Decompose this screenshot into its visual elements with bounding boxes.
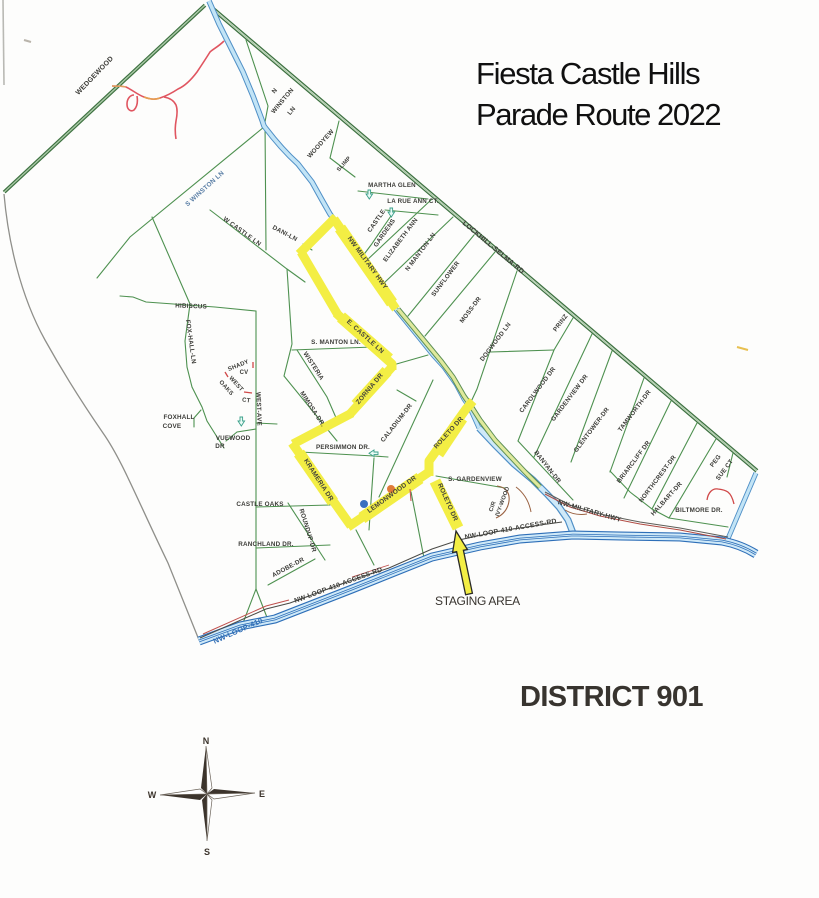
svg-text:N: N — [203, 736, 210, 746]
svg-text:S: S — [204, 847, 210, 857]
svg-text:COVE: COVE — [163, 423, 182, 430]
svg-text:FOXHALL: FOXHALL — [163, 414, 194, 421]
svg-text:CV: CV — [240, 370, 249, 376]
svg-text:DISTRICT 901: DISTRICT 901 — [520, 681, 703, 713]
svg-text:VUEWOOD: VUEWOOD — [216, 435, 251, 442]
svg-text:CT: CT — [242, 397, 251, 404]
svg-text:STAGING AREA: STAGING AREA — [435, 594, 520, 608]
svg-text:PERSIMMON DR.: PERSIMMON DR. — [316, 444, 370, 451]
svg-text:HIBISCUS: HIBISCUS — [175, 302, 207, 310]
svg-text:RANCHLAND DR.: RANCHLAND DR. — [238, 541, 293, 548]
svg-text:BILTMORE DR.: BILTMORE DR. — [675, 507, 722, 514]
svg-text:S. MANTON LN.: S. MANTON LN. — [311, 339, 361, 346]
svg-text:W: W — [148, 790, 157, 800]
svg-text:MARTHA GLEN: MARTHA GLEN — [368, 182, 416, 189]
svg-text:E: E — [259, 789, 265, 799]
svg-text:S. GARDENVIEW: S. GARDENVIEW — [448, 476, 502, 483]
svg-text:LA RUE ANN CT.: LA RUE ANN CT. — [387, 198, 439, 205]
svg-text:CASTLE OAKS: CASTLE OAKS — [236, 501, 283, 508]
svg-text:Parade Route 2022: Parade Route 2022 — [476, 97, 720, 132]
svg-text:WEST-AVE: WEST-AVE — [254, 392, 262, 426]
svg-text:Fiesta Castle Hills: Fiesta Castle Hills — [476, 56, 700, 91]
svg-text:DR: DR — [215, 443, 225, 450]
